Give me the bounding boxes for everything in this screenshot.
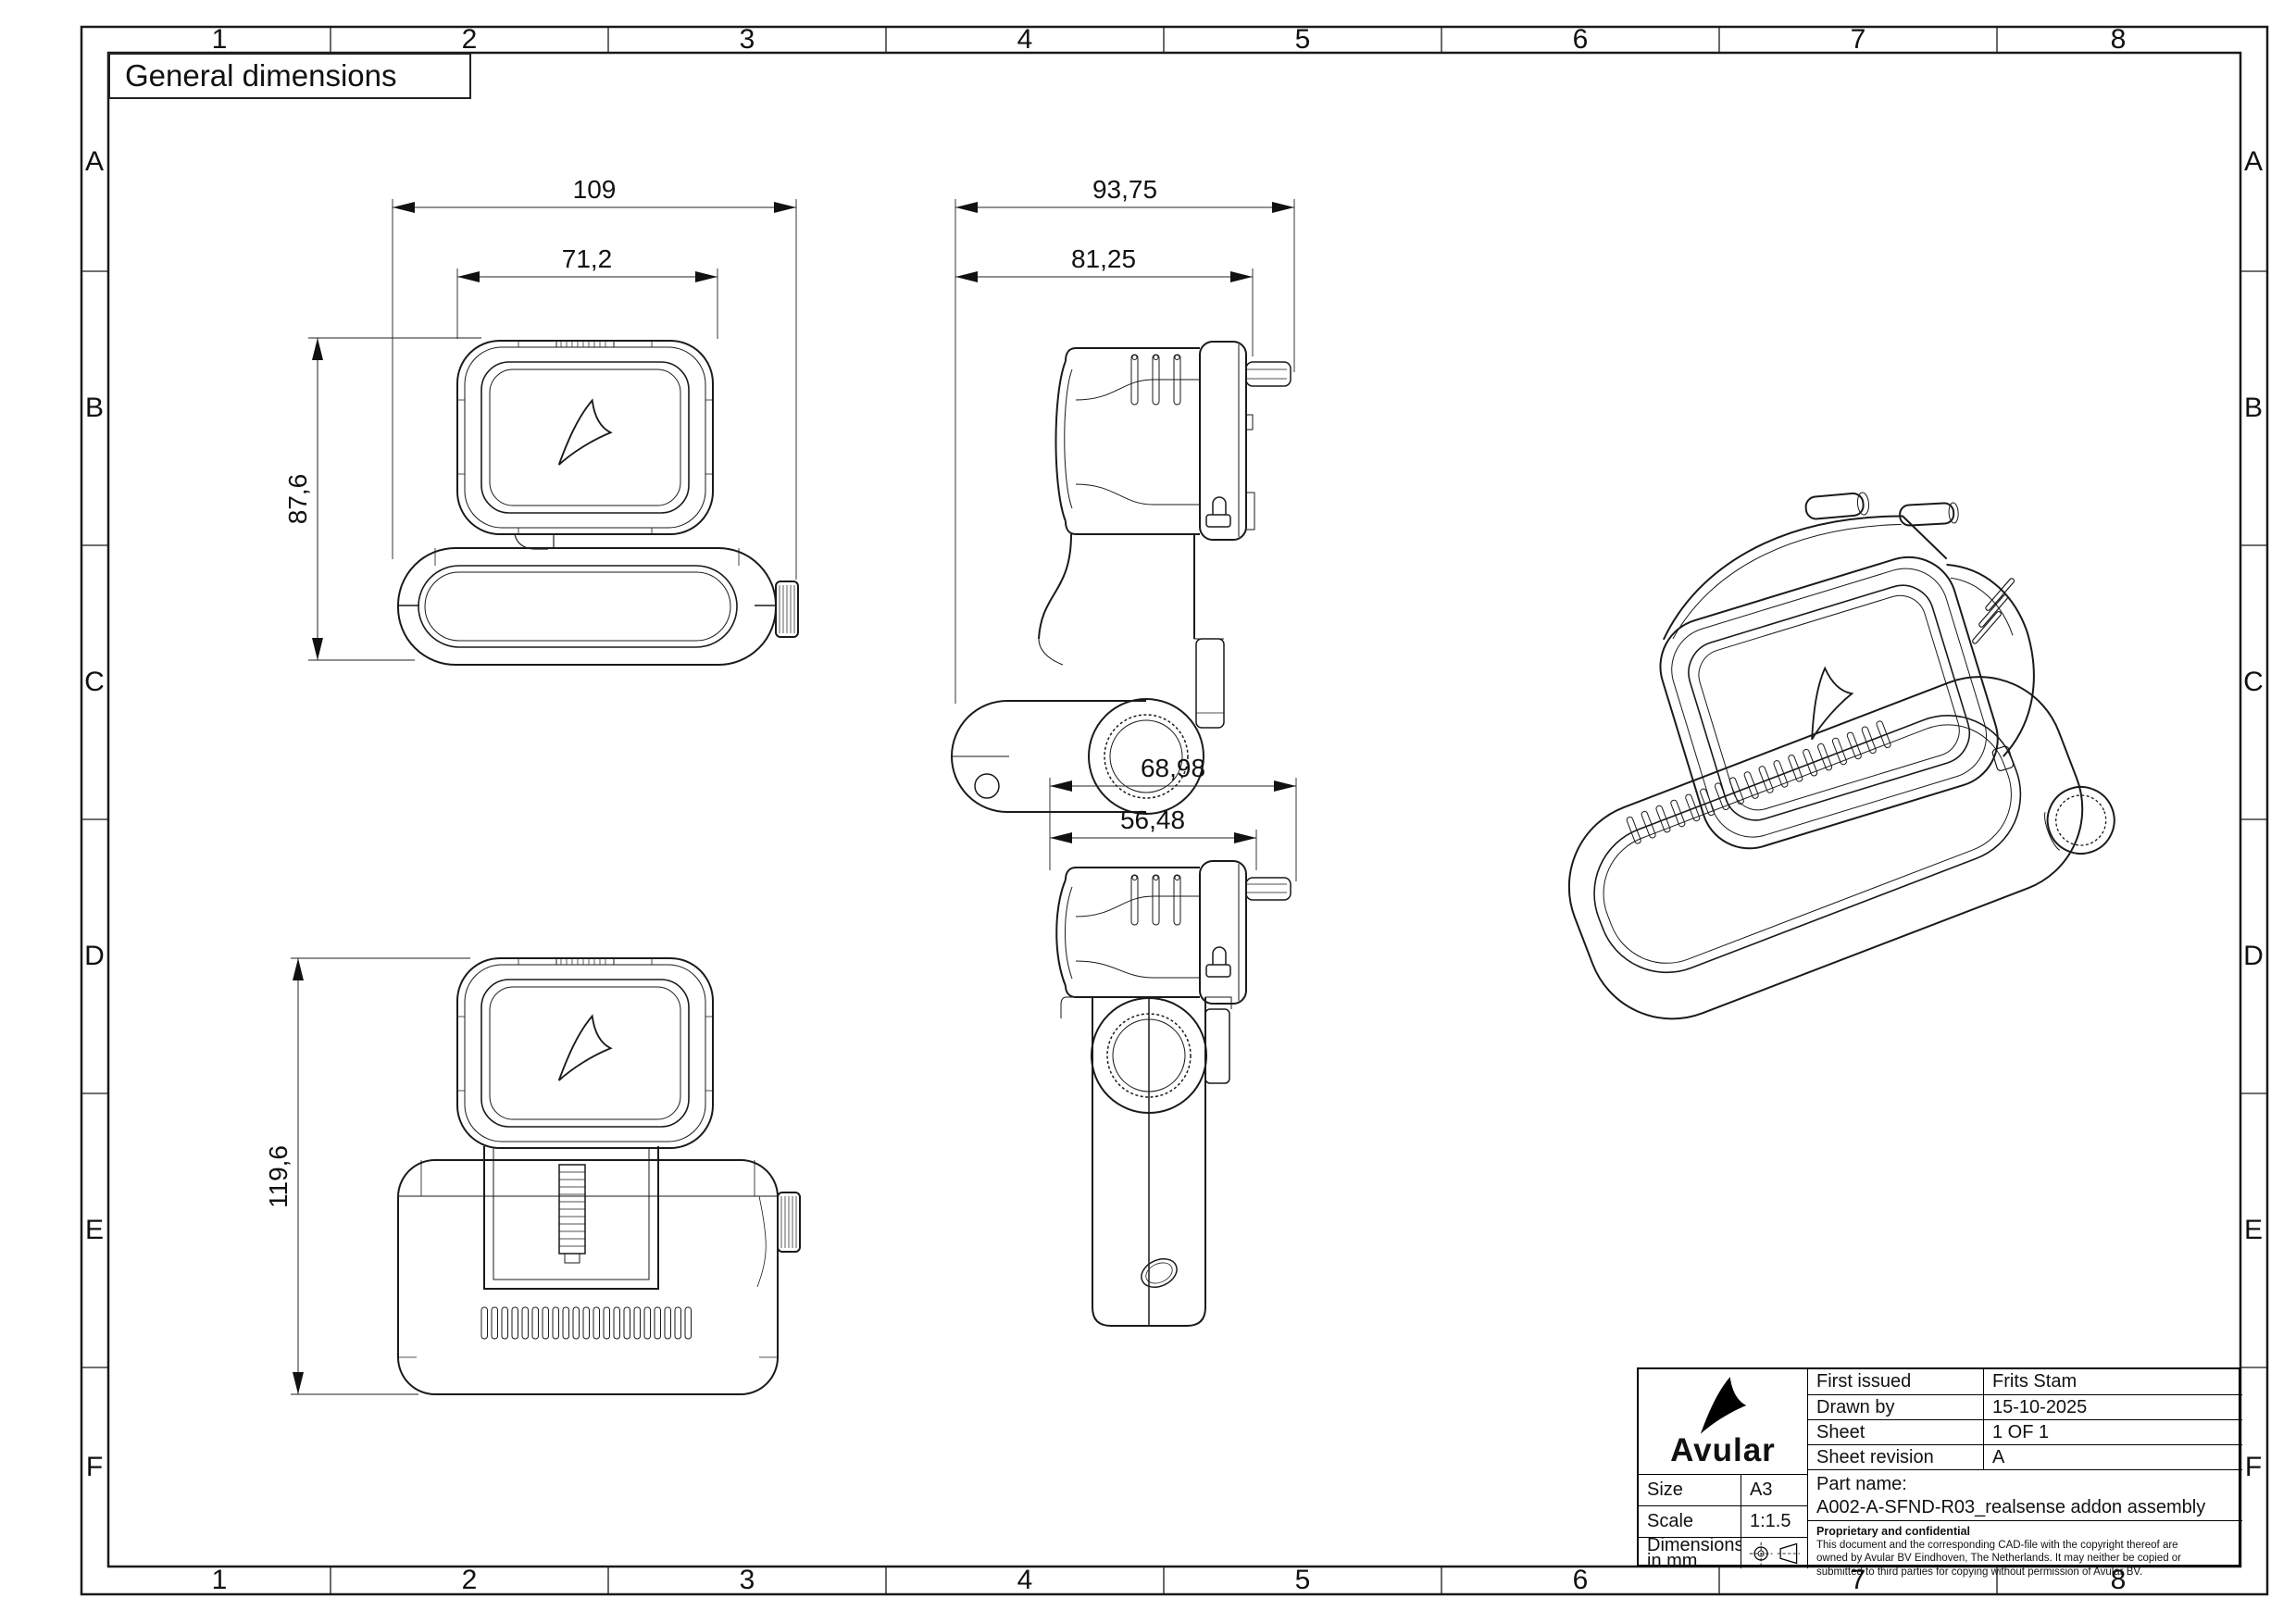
dim-height: 87,6 — [283, 474, 312, 525]
zone-row-right-B: B — [2244, 393, 2263, 424]
dimensions-side-bottom: 68,98 56,48 — [1050, 754, 1296, 881]
zone-col-bottom-2: 2 — [462, 1565, 478, 1596]
zone-col-top-7: 7 — [1851, 24, 1866, 56]
proprietary-notice: Proprietary and confidential This docume… — [1807, 1520, 2242, 1568]
dim-screen-width: 71,2 — [562, 244, 613, 273]
scale-label: Scale — [1639, 1505, 1741, 1537]
avular-logo-outline-icon — [559, 1016, 611, 1080]
dim-body-depth: 56,48 — [1120, 805, 1185, 834]
part-name-label: Part name: — [1816, 1473, 2242, 1496]
zone-col-top-1: 1 — [212, 24, 228, 56]
projection-symbol-icon — [1746, 1541, 1803, 1567]
avular-logo-arrow-icon — [1694, 1375, 1752, 1436]
first-issued-label: First issued — [1807, 1369, 1983, 1394]
zone-col-top-5: 5 — [1295, 24, 1311, 56]
zone-row-left-A: A — [85, 146, 104, 178]
zone-row-right-C: C — [2243, 667, 2264, 698]
title-block: Avular Size A3 Scale 1:1.5 Dimensions in… — [1637, 1367, 2240, 1567]
sheet-title-box: General dimensions — [108, 53, 471, 99]
zone-row-right-E: E — [2244, 1215, 2263, 1246]
view-front — [398, 341, 798, 665]
dim-body-depth: 81,25 — [1071, 244, 1136, 273]
dimensions-front: 109 71,2 87,6 — [283, 175, 796, 660]
dim-overall-depth: 93,75 — [1092, 175, 1157, 204]
drawn-by-value: 15-10-2025 — [1983, 1394, 2242, 1419]
thumbscrew-knob — [778, 1192, 800, 1252]
sheet-title: General dimensions — [125, 58, 397, 94]
size-value: A3 — [1741, 1474, 1807, 1505]
company-logo: Avular — [1639, 1369, 1807, 1474]
sheet-label: Sheet — [1807, 1419, 1983, 1444]
drawing-sheet: { "sheet": { "title": "General dimension… — [0, 0, 2296, 1623]
units-label: Dimensions in mm — [1639, 1537, 1741, 1568]
vent-slots — [1131, 875, 1180, 925]
avular-logo-outline-icon — [559, 400, 611, 464]
dimensions-side-top: 93,75 81,25 — [955, 175, 1294, 704]
zone-col-top-8: 8 — [2111, 24, 2127, 56]
thread-screw — [559, 1165, 585, 1263]
base-vent-slots — [481, 1307, 692, 1339]
zone-col-top-2: 2 — [462, 24, 478, 56]
zone-col-bottom-5: 5 — [1295, 1565, 1311, 1596]
first-issued-value: Frits Stam — [1983, 1369, 2242, 1394]
zone-col-top-6: 6 — [1573, 24, 1589, 56]
part-name-cell: Part name: A002-A-SFND-R03_realsense add… — [1807, 1469, 2242, 1520]
connector-pin — [1246, 872, 1291, 905]
scale-value: 1:1.5 — [1741, 1505, 1807, 1537]
view-side-top — [952, 342, 1291, 814]
dim-overall-width: 109 — [573, 175, 617, 204]
projection-symbol-cell — [1741, 1537, 1807, 1568]
connector-pin — [1805, 493, 1870, 520]
dimensions-rear: 119,6 — [264, 958, 470, 1394]
zone-col-bottom-1: 1 — [212, 1565, 228, 1596]
zone-row-right-F: F — [2245, 1452, 2262, 1483]
zone-col-bottom-6: 6 — [1573, 1565, 1589, 1596]
thumbscrew-knob — [776, 581, 798, 637]
company-logo-wordmark: Avular — [1670, 1432, 1776, 1469]
zone-col-bottom-4: 4 — [1017, 1565, 1033, 1596]
dim-overall-height: 119,6 — [264, 1145, 293, 1208]
zone-col-bottom-3: 3 — [740, 1565, 755, 1596]
connector-pin — [1246, 356, 1291, 392]
proprietary-title: Proprietary and confidential — [1816, 1525, 2235, 1539]
part-name-value: A002-A-SFND-R03_realsense addon assembly — [1816, 1496, 2242, 1519]
dim-overall-depth: 68,98 — [1141, 754, 1205, 782]
zone-row-left-E: E — [85, 1215, 104, 1246]
view-rear — [398, 958, 800, 1394]
sheet-revision-label: Sheet revision — [1807, 1444, 1983, 1469]
zone-row-left-D: D — [84, 941, 105, 972]
zone-row-right-A: A — [2244, 146, 2263, 178]
drawn-by-label: Drawn by — [1807, 1394, 1983, 1419]
avular-logo-outline-icon — [1793, 663, 1862, 740]
view-side-bottom — [1056, 861, 1291, 1326]
view-isometric — [1544, 446, 2128, 1043]
zone-row-left-C: C — [84, 667, 105, 698]
zone-col-top-3: 3 — [740, 24, 755, 56]
zone-row-left-B: B — [85, 393, 104, 424]
sheet-revision-value: A — [1983, 1444, 2242, 1469]
zone-col-top-4: 4 — [1017, 24, 1033, 56]
size-label: Size — [1639, 1474, 1741, 1505]
zone-row-left-F: F — [86, 1452, 103, 1483]
zone-row-right-D: D — [2243, 941, 2264, 972]
sheet-value: 1 OF 1 — [1983, 1419, 2242, 1444]
